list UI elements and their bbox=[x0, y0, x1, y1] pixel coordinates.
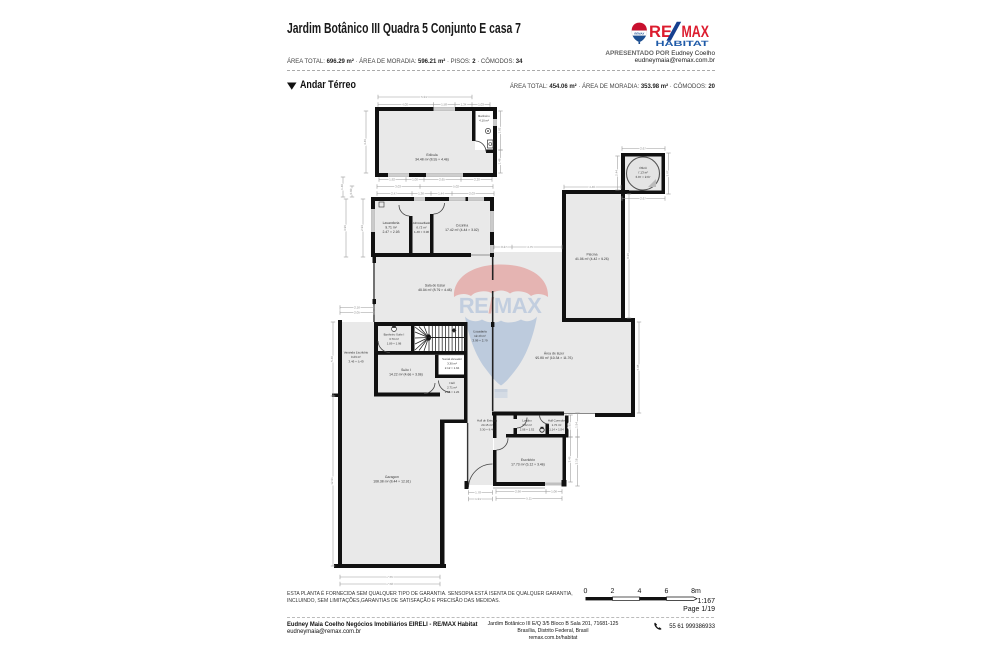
svg-text:1.92: 1.92 bbox=[389, 178, 395, 182]
svg-text:2.96: 2.96 bbox=[515, 490, 521, 494]
svg-text:6.72 m²: 6.72 m² bbox=[416, 226, 426, 230]
svg-text:3.99 × 2.79: 3.99 × 2.79 bbox=[472, 339, 487, 343]
svg-text:1.14 × 1.54: 1.14 × 1.54 bbox=[549, 428, 564, 432]
svg-text:41.06 m² (4.42 × 9.26): 41.06 m² (4.42 × 9.26) bbox=[575, 257, 609, 261]
svg-text:2.15 × 1.26: 2.15 × 1.26 bbox=[445, 390, 460, 394]
svg-text:Suíte I: Suíte I bbox=[401, 368, 411, 372]
svg-text:9.29 m²: 9.29 m² bbox=[351, 355, 361, 359]
svg-text:RE/MAX: RE/MAX bbox=[459, 293, 542, 318]
svg-text:6: 6 bbox=[665, 588, 669, 595]
svg-text:2.03: 2.03 bbox=[469, 192, 475, 196]
svg-text:2.05: 2.05 bbox=[354, 311, 360, 315]
svg-text:3.18: 3.18 bbox=[575, 458, 579, 464]
svg-text:12.43 m²: 12.43 m² bbox=[474, 334, 486, 338]
svg-text:1.52: 1.52 bbox=[568, 423, 572, 429]
svg-text:14.22 m² (4.66 × 3.06): 14.22 m² (4.66 × 3.06) bbox=[389, 373, 423, 377]
svg-text:2.93: 2.93 bbox=[360, 225, 364, 231]
svg-text:2.44: 2.44 bbox=[615, 170, 619, 176]
svg-text:Piscina: Piscina bbox=[587, 253, 598, 257]
svg-text:3.30 × 9.46: 3.30 × 9.46 bbox=[480, 428, 495, 432]
svg-text:2.47: 2.47 bbox=[391, 192, 397, 196]
svg-text:2: 2 bbox=[611, 588, 615, 595]
svg-text:7.13 m²: 7.13 m² bbox=[638, 171, 648, 175]
svg-text:20.15 m²: 20.15 m² bbox=[481, 423, 492, 427]
svg-text:Lavabo: Lavabo bbox=[522, 419, 532, 423]
svg-text:2.67: 2.67 bbox=[640, 197, 646, 201]
svg-text:2.47 × 2.93: 2.47 × 2.93 bbox=[382, 230, 399, 234]
svg-text:8m: 8m bbox=[691, 588, 701, 595]
svg-text:3.30 m²: 3.30 m² bbox=[447, 362, 457, 366]
svg-text:2.20: 2.20 bbox=[474, 178, 480, 182]
svg-text:0.80: 0.80 bbox=[349, 188, 353, 194]
svg-text:9.26: 9.26 bbox=[626, 253, 630, 259]
svg-text:4.75: 4.75 bbox=[527, 245, 533, 249]
svg-text:2.71 m²: 2.71 m² bbox=[447, 386, 457, 390]
svg-text:3.42 m²: 3.42 m² bbox=[522, 423, 532, 427]
svg-text:95.80 m² (10.34 × 11.76): 95.80 m² (10.34 × 11.76) bbox=[535, 356, 572, 360]
svg-text:1.06: 1.06 bbox=[551, 490, 557, 494]
svg-text:2.16: 2.16 bbox=[354, 306, 360, 310]
svg-text:Sala de Estar: Sala de Estar bbox=[425, 284, 446, 288]
svg-text:6.95: 6.95 bbox=[636, 364, 640, 370]
svg-text:17.73 m² (5.12 × 3.46): 17.73 m² (5.12 × 3.46) bbox=[511, 463, 545, 467]
svg-text:Banheiro: Banheiro bbox=[478, 114, 490, 118]
svg-text:1.36: 1.36 bbox=[418, 192, 424, 196]
svg-text:34.48 m² (8.55 × 4.46): 34.48 m² (8.55 × 4.46) bbox=[415, 158, 449, 162]
svg-text:3.70 m²: 3.70 m² bbox=[389, 337, 399, 341]
svg-text:2.65: 2.65 bbox=[439, 178, 445, 182]
svg-text:Varanda Escritório: Varanda Escritório bbox=[344, 351, 369, 355]
svg-text:4.00: 4.00 bbox=[402, 103, 408, 107]
svg-text:5.02: 5.02 bbox=[453, 185, 459, 189]
svg-text:1.76 m²: 1.76 m² bbox=[552, 423, 562, 427]
svg-text:Hall: Hall bbox=[450, 381, 455, 385]
svg-text:1.92: 1.92 bbox=[498, 127, 502, 133]
svg-text:1.03: 1.03 bbox=[478, 103, 484, 107]
svg-text:Garagem: Garagem bbox=[385, 475, 399, 479]
svg-text:3.46: 3.46 bbox=[568, 456, 572, 462]
svg-text:Cozinha: Cozinha bbox=[456, 224, 469, 228]
svg-text:1.58: 1.58 bbox=[441, 103, 447, 107]
svg-text:1.78: 1.78 bbox=[475, 491, 481, 495]
svg-text:7.55: 7.55 bbox=[387, 575, 393, 579]
svg-text:4: 4 bbox=[638, 588, 642, 595]
svg-text:1.40 × 3.96: 1.40 × 3.96 bbox=[414, 230, 429, 234]
svg-text:1.91: 1.91 bbox=[475, 497, 481, 501]
svg-text:4.10 m²: 4.10 m² bbox=[479, 119, 489, 123]
svg-text:Lavanderia: Lavanderia bbox=[383, 221, 400, 225]
svg-text:1.48: 1.48 bbox=[498, 158, 502, 164]
svg-text:5.11: 5.11 bbox=[526, 497, 532, 501]
svg-text:Edícula: Edícula bbox=[426, 153, 437, 157]
svg-text:5.91: 5.91 bbox=[421, 95, 427, 99]
svg-text:4.46: 4.46 bbox=[363, 139, 367, 145]
svg-text:Hall de Entrada: Hall de Entrada bbox=[477, 419, 497, 423]
svg-text:Almoxarifado: Almoxarifado bbox=[413, 221, 431, 225]
svg-text:Banheiro Suíte I: Banheiro Suíte I bbox=[384, 333, 405, 337]
svg-text:1.34: 1.34 bbox=[461, 103, 467, 107]
svg-text:3.07 × 2.67: 3.07 × 2.67 bbox=[635, 175, 650, 179]
svg-text:0.27: 0.27 bbox=[501, 245, 507, 249]
svg-text:Escadaria: Escadaria bbox=[473, 330, 487, 334]
svg-text:2.67: 2.67 bbox=[640, 147, 646, 151]
svg-text:108.38 m² (8.44 × 12.91): 108.38 m² (8.44 × 12.91) bbox=[373, 480, 410, 484]
svg-text:3.46 × 5.40: 3.46 × 5.40 bbox=[348, 360, 363, 364]
svg-text:7.58: 7.58 bbox=[387, 582, 393, 586]
svg-text:4.46: 4.46 bbox=[589, 185, 595, 189]
svg-text:17.42 m² (4.44 × 3.92): 17.42 m² (4.44 × 3.92) bbox=[445, 228, 479, 232]
svg-text:3.03: 3.03 bbox=[395, 185, 401, 189]
svg-text:2.67: 2.67 bbox=[666, 170, 670, 176]
svg-text:5.40: 5.40 bbox=[330, 356, 334, 362]
svg-text:9.71 m²: 9.71 m² bbox=[385, 226, 397, 230]
svg-text:Social elevador: Social elevador bbox=[442, 357, 462, 361]
svg-text:0: 0 bbox=[584, 588, 588, 595]
svg-text:2.08 × 1.52: 2.08 × 1.52 bbox=[520, 428, 535, 432]
svg-text:Hall Corredor: Hall Corredor bbox=[548, 419, 565, 423]
svg-text:Área de lazer: Área de lazer bbox=[544, 352, 565, 356]
svg-text:1.44: 1.44 bbox=[438, 192, 444, 196]
svg-text:1.00: 1.00 bbox=[412, 178, 418, 182]
svg-text:1.54: 1.54 bbox=[575, 422, 579, 428]
svg-text:Escritório: Escritório bbox=[521, 458, 535, 462]
svg-text:1.40: 1.40 bbox=[340, 184, 344, 190]
svg-text:1.89 × 1.98: 1.89 × 1.98 bbox=[387, 342, 402, 346]
svg-text:Ofurô: Ofurô bbox=[639, 166, 647, 170]
svg-text:12.91: 12.91 bbox=[330, 477, 334, 485]
svg-text:3.96: 3.96 bbox=[343, 225, 347, 231]
svg-text:2.12 × 1.66: 2.12 × 1.66 bbox=[445, 366, 460, 370]
svg-text:40.04 m² (8.79 × 4.46): 40.04 m² (8.79 × 4.46) bbox=[418, 288, 452, 292]
